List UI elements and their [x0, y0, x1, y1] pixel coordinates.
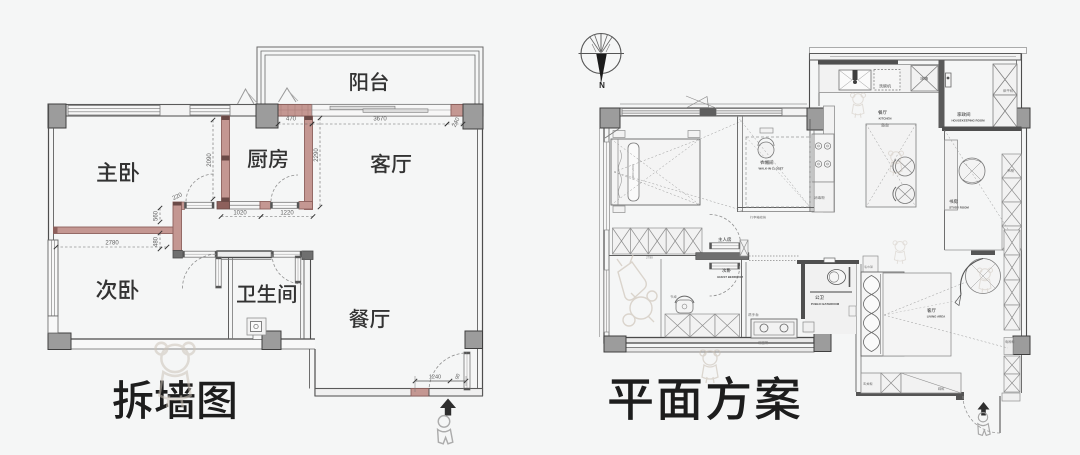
- svg-text:3670: 3670: [373, 117, 387, 123]
- svg-text:PUBLIC BATHROOM: PUBLIC BATHROOM: [811, 302, 840, 306]
- svg-text:2290: 2290: [314, 148, 320, 162]
- svg-text:560: 560: [154, 210, 160, 221]
- svg-text:LIVING AREA: LIVING AREA: [927, 315, 946, 319]
- svg-text:2090: 2090: [207, 153, 213, 167]
- svg-text:N: N: [599, 81, 605, 90]
- svg-text:470: 470: [286, 117, 297, 123]
- svg-text:480: 480: [154, 236, 160, 247]
- svg-text:1020: 1020: [233, 211, 247, 217]
- svg-text:1220: 1220: [280, 211, 294, 217]
- svg-text:1240: 1240: [429, 375, 441, 381]
- svg-text:KITCHEN: KITCHEN: [879, 117, 892, 121]
- svg-text:WALK-IN CLOSET: WALK-IN CLOSET: [759, 167, 784, 171]
- svg-text:STUDY ROOM: STUDY ROOM: [949, 206, 969, 210]
- svg-text:2780: 2780: [105, 241, 119, 247]
- svg-text:HOUSEKEEPING ROOM: HOUSEKEEPING ROOM: [951, 119, 985, 123]
- svg-text:1800X2000: 1800X2000: [631, 164, 635, 180]
- svg-text:GUEST BEDROOM: GUEST BEDROOM: [717, 275, 743, 279]
